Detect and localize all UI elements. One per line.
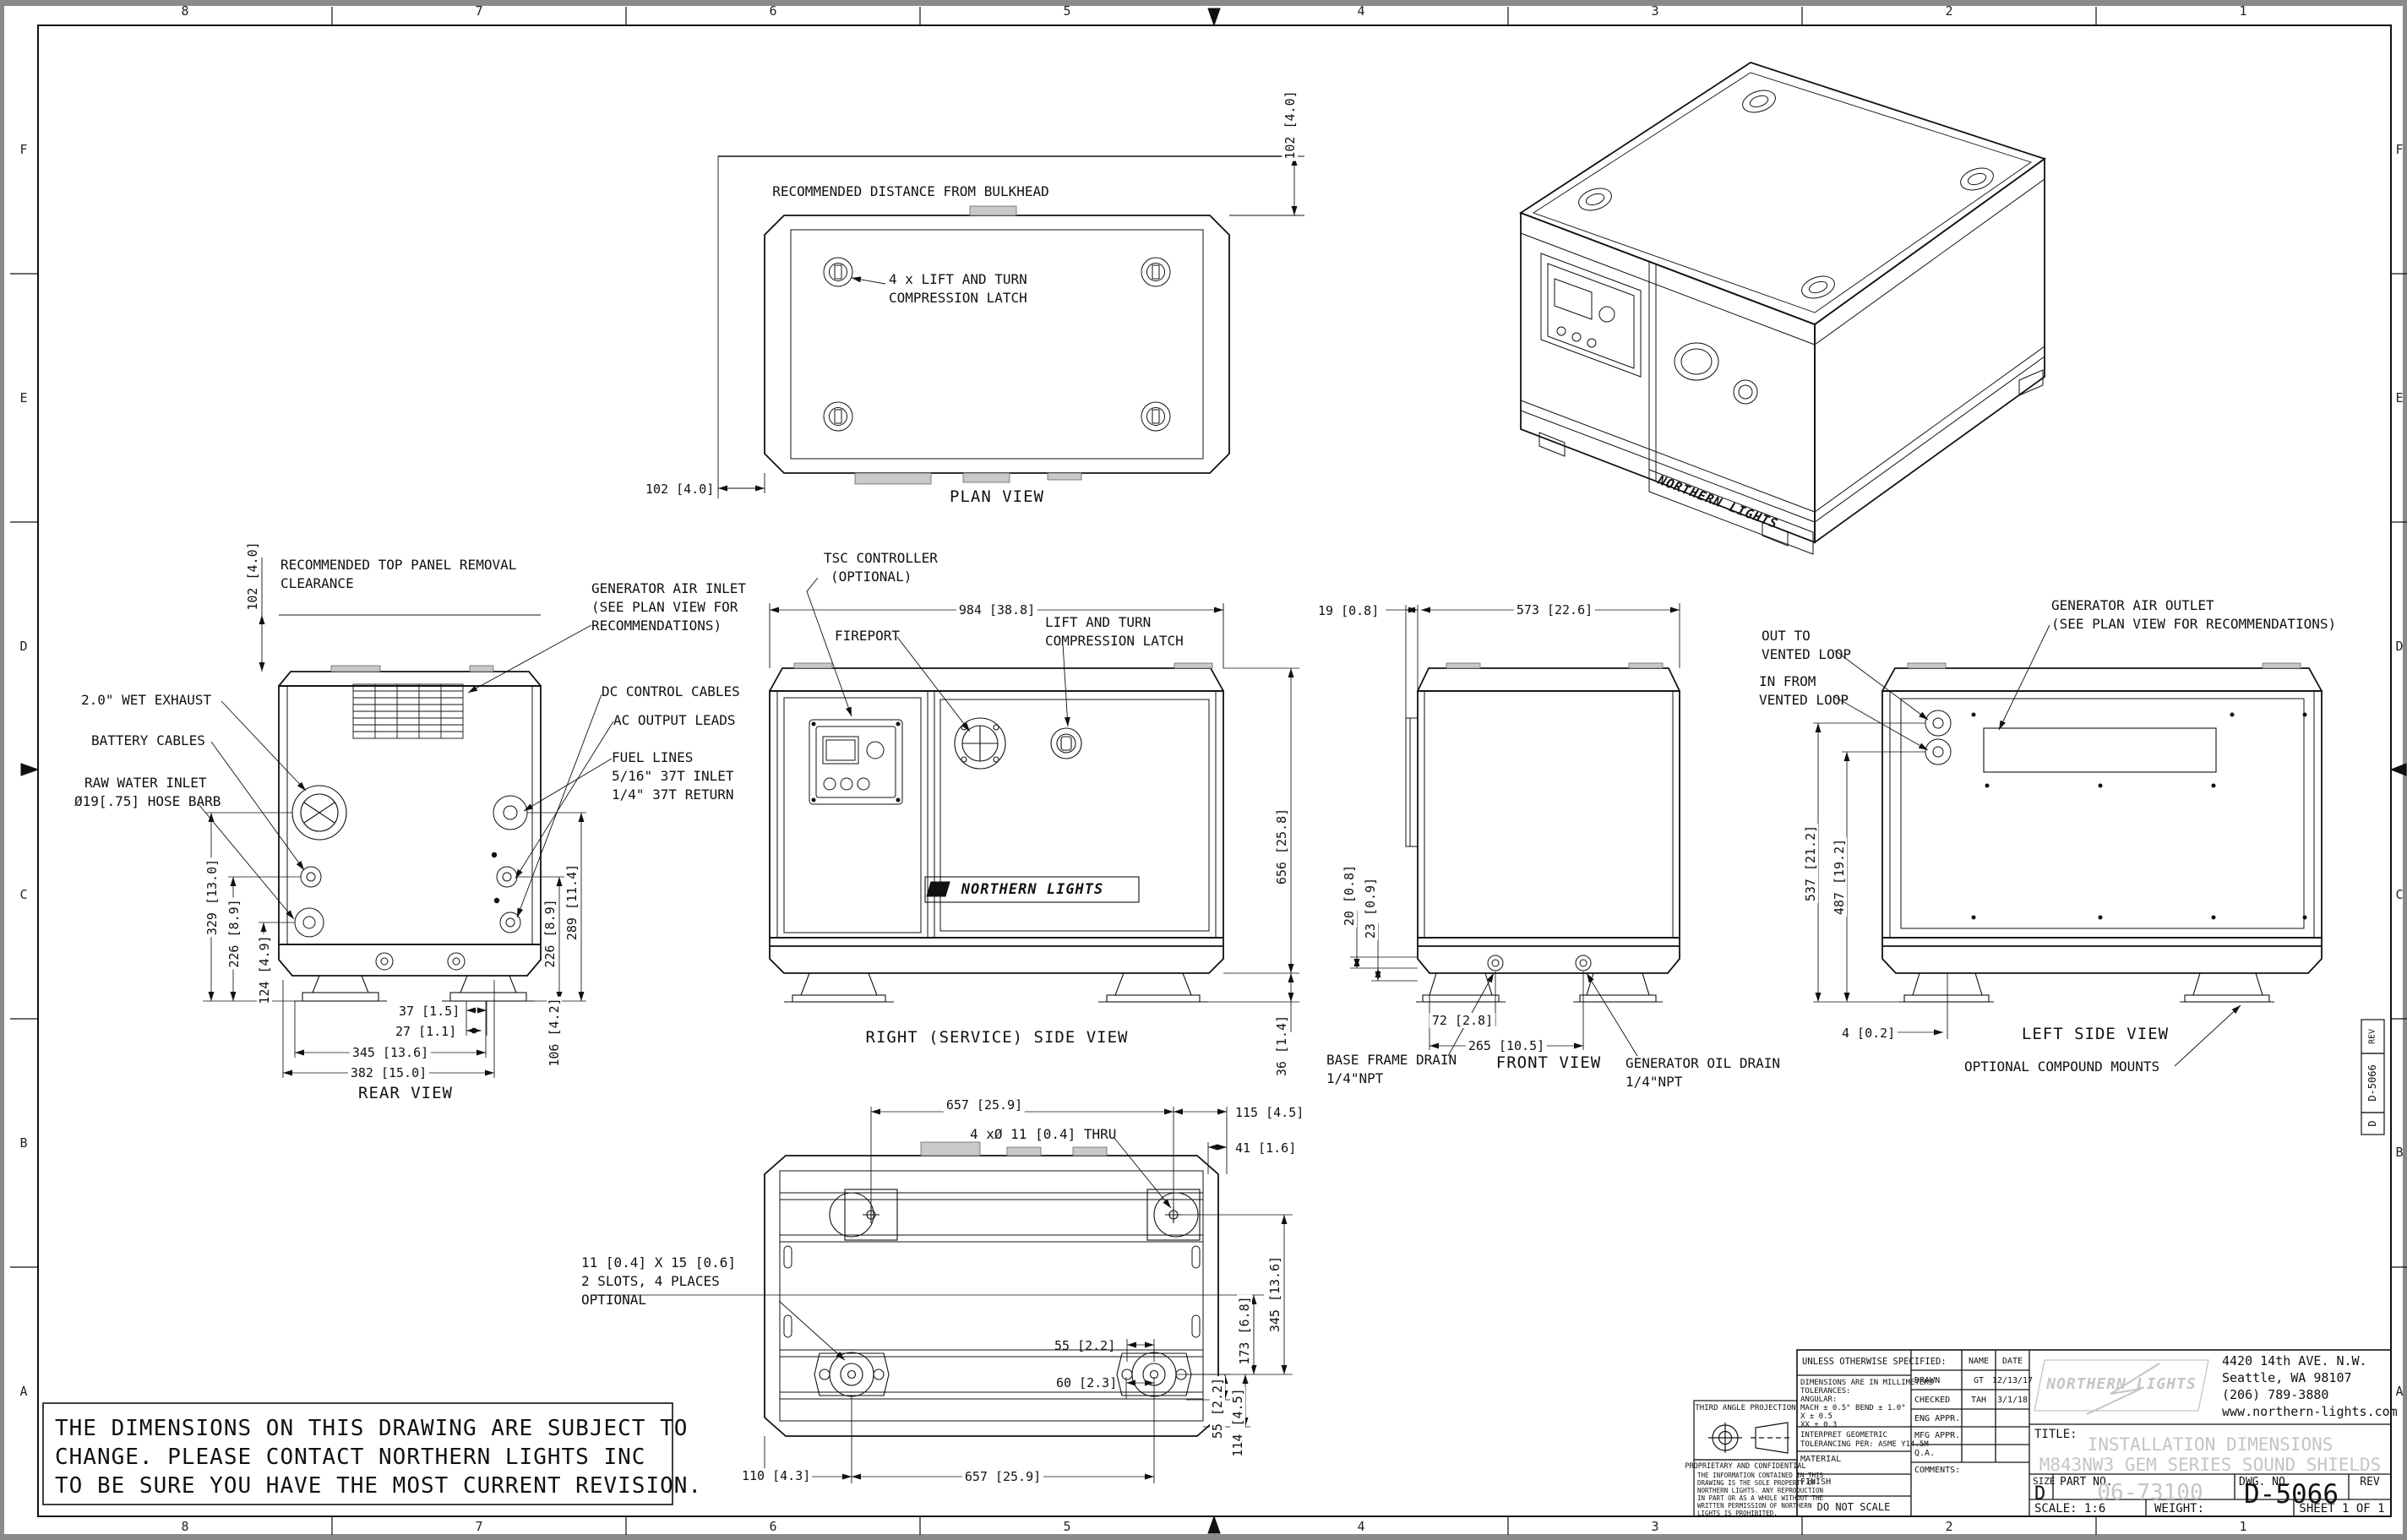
zone-bottom-5: 5 <box>1063 1519 1070 1534</box>
tb-scale: SCALE: 1:6 <box>2034 1502 2105 1516</box>
zone-right-a: A <box>2395 1384 2403 1399</box>
bottom-dim-55b: 55 [2.2] <box>1210 1376 1225 1440</box>
zone-right-b: B <box>2395 1145 2403 1160</box>
base-drain-label-line2: 1/4"NPT <box>1326 1071 1383 1086</box>
tb-material: MATERIAL <box>1800 1455 1841 1464</box>
zone-top-3: 3 <box>1651 3 1658 19</box>
tb-qa: Q.A. <box>1914 1449 1935 1458</box>
isometric-view-geometry <box>1521 63 2045 554</box>
revision-note-line1: THE DIMENSIONS ON THIS DRAWING ARE SUBJE… <box>55 1416 688 1441</box>
zone-left-f: F <box>19 142 27 157</box>
feet <box>784 973 1208 1002</box>
rs-dim-656: 656 [25.8] <box>1274 807 1289 886</box>
fireport-label: FIREPORT <box>835 629 900 644</box>
tb-interpret2: TOLERANCING PER: ASME Y14.5M <box>1800 1440 1929 1449</box>
control-panel-icon <box>1541 253 1641 377</box>
zone-bottom-1: 1 <box>2239 1519 2246 1534</box>
rear-dim-382: 382 [15.0] <box>348 1065 429 1080</box>
battery-cables-label: BATTERY CABLES <box>91 733 205 748</box>
vented-loop-in-fitting <box>1925 739 1951 765</box>
rear-clearance-label-line2: CLEARANCE <box>280 576 354 591</box>
fireport-flange <box>955 718 1005 769</box>
tb-address1: 4420 14th AVE. N.W. <box>2222 1353 2367 1369</box>
third-angle-label: THIRD ANGLE PROJECTION <box>1695 1404 1795 1412</box>
tb-unless: UNLESS OTHERWISE SPECIFIED: <box>1802 1357 1947 1367</box>
slots-label-line3: OPTIONAL <box>581 1292 646 1308</box>
center-arrow-top <box>1208 8 1220 25</box>
zone-bottom-2: 2 <box>1945 1519 1952 1534</box>
ls-dim-487: 487 [19.2] <box>1832 837 1847 917</box>
right-side-view-title: RIGHT (SERVICE) SIDE VIEW <box>866 1029 1129 1047</box>
rear-dim-329: 329 [13.0] <box>204 857 220 937</box>
mount-tabs <box>855 206 1081 484</box>
tb-checked-date: 3/1/18 <box>1997 1396 2028 1405</box>
zone-bottom-7: 7 <box>475 1519 482 1534</box>
thru-holes-label: 4 xØ 11 [0.4] THRU <box>970 1127 1116 1142</box>
tb-drawn: DRAWN <box>1914 1376 1940 1385</box>
front-dim-20: 20 [0.8] <box>1342 863 1357 928</box>
left-side-view-title: LEFT SIDE VIEW <box>2022 1026 2169 1043</box>
top-mount-plates <box>830 1189 1200 1240</box>
rear-dim-clearance: 102 [4.0] <box>245 540 260 612</box>
revision-note-line2: CHANGE. PLEASE CONTACT NORTHERN LIGHTS I… <box>55 1445 645 1470</box>
air-inlet-label-line1: GENERATOR AIR INLET <box>591 581 746 596</box>
base-frame-drain-fitting <box>1488 955 1503 971</box>
rear-dim-37: 37 [1.5] <box>399 1004 460 1019</box>
bottom-dim-110: 110 [4.3] <box>740 1468 812 1483</box>
zone-top-2: 2 <box>1945 3 1952 19</box>
tb-address3: (206) 789-3880 <box>2222 1387 2328 1402</box>
base-drain-holes <box>376 953 465 970</box>
plan-latch-label-line2: COMPRESSION LATCH <box>889 291 1027 306</box>
panel-edge <box>1406 718 1418 846</box>
revision-note-line3: TO BE SURE YOU HAVE THE MOST CURRENT REV… <box>55 1473 702 1499</box>
mount-tabs <box>331 666 493 672</box>
bottom-dim-345: 345 [13.6] <box>1267 1254 1282 1334</box>
tb-title-line2: M843NW3 GEM SERIES SOUND SHIELDS <box>2039 1455 2382 1475</box>
air-outlet-label-line2: (SEE PLAN VIEW FOR RECOMMENDATIONS) <box>2051 617 2336 632</box>
slots-label-line1: 11 [0.4] X 15 [0.6] <box>581 1255 736 1271</box>
rs-dim-984: 984 [38.8] <box>956 602 1037 618</box>
proprietary-line: DRAWING IS THE SOLE PROPERTY OF <box>1697 1479 1816 1487</box>
edge-dwg-no: D-5066 <box>2366 1063 2378 1102</box>
zone-right-c: C <box>2395 887 2403 902</box>
edge-size: D <box>2366 1118 2378 1128</box>
bottom-dim-114: 114 [4.5] <box>1230 1386 1245 1458</box>
ls-dim-537: 537 [21.2] <box>1803 824 1818 903</box>
tb-mfg-appr: MFG APPR. <box>1914 1431 1960 1440</box>
leader-lines <box>807 578 1068 732</box>
rear-dim-124: 124 [4.9] <box>257 933 272 1005</box>
bottom-dim-173: 173 [6.8] <box>1237 1294 1252 1366</box>
center-arrow-bottom <box>1208 1516 1220 1533</box>
zone-left-b: B <box>19 1135 27 1151</box>
bottom-dim-60: 60 [2.3] <box>1056 1375 1117 1390</box>
rear-view-title: REAR VIEW <box>358 1085 453 1102</box>
fireport-icon <box>1675 343 1757 404</box>
latch-icon <box>1576 86 1996 302</box>
bulkhead-distance-label: RECOMMENDED DISTANCE FROM BULKHEAD <box>772 184 1049 199</box>
iso-feet <box>1539 370 2043 546</box>
mount-tabs <box>921 1142 1107 1156</box>
screw-dots <box>1972 713 2307 920</box>
tb-tolerances: TOLERANCES: <box>1800 1387 1851 1396</box>
front-view-title: FRONT VIEW <box>1496 1054 1601 1072</box>
plan-dim-102-top: 102 [4.0] <box>1282 89 1298 161</box>
proprietary-line: WRITTEN PERMISSION OF NORTHERN <box>1697 1502 1811 1510</box>
feet <box>1416 973 1663 1002</box>
compound-mounts-label: OPTIONAL COMPOUND MOUNTS <box>1964 1059 2159 1075</box>
tb-address2: Seattle, WA 98107 <box>2222 1370 2352 1385</box>
tb-checked-name: TAH <box>1971 1396 1986 1405</box>
bottom-dim-657-bottom: 657 [25.9] <box>962 1469 1043 1484</box>
raw-water-label-line1: RAW WATER INLET <box>84 775 207 791</box>
zone-right-e: E <box>2395 390 2403 405</box>
zone-top-7: 7 <box>475 3 482 19</box>
tb-angular: ANGULAR: <box>1800 1396 1837 1404</box>
latch-icon <box>1051 728 1081 759</box>
ac-output-fitting <box>497 867 517 887</box>
drawing-linework <box>0 0 2407 1540</box>
tb-rev-label: REV <box>2360 1476 2379 1488</box>
tsc-controller-panel <box>809 720 902 804</box>
front-view-geometry <box>1350 603 1680 1056</box>
tb-address4: www.northern-lights.com <box>2222 1404 2398 1419</box>
ls-dim-4: 4 [0.2] <box>1842 1026 1895 1041</box>
zone-bottom-4: 4 <box>1357 1519 1364 1534</box>
fuel-line-fitting <box>493 796 527 830</box>
zone-bottom-6: 6 <box>769 1519 776 1534</box>
rs-dim-36: 36 [1.4] <box>1274 1014 1289 1078</box>
front-dim-23: 23 [0.9] <box>1363 876 1378 940</box>
zone-right-d: D <box>2395 639 2403 654</box>
fuel-lines-label-line3: 1/4" 37T RETURN <box>612 787 734 803</box>
tb-interpret1: INTERPRET GEOMETRIC <box>1800 1431 1887 1439</box>
tb-sheet: SHEET 1 OF 1 <box>2299 1502 2384 1516</box>
drawing-sheet: 8 7 6 5 4 3 2 1 8 7 6 5 4 3 2 1 F E D C … <box>0 0 2407 1540</box>
dc-control-label: DC CONTROL CABLES <box>602 684 740 699</box>
fuel-lines-label-line2: 5/16" 37T INLET <box>612 769 734 784</box>
out-vented-loop-line2: VENTED LOOP <box>1762 647 1851 662</box>
tb-checked: CHECKED <box>1914 1396 1950 1405</box>
bottom-view-geometry <box>591 1107 1293 1483</box>
out-vented-loop-line1: OUT TO <box>1762 629 1811 644</box>
air-inlet-louvers <box>353 684 463 738</box>
rear-dim-106: 106 [4.2] <box>547 996 562 1068</box>
center-arrow-left <box>21 764 38 775</box>
fuel-lines-label-line1: FUEL LINES <box>612 750 693 765</box>
tb-mach: MACH ± 0.5° BEND ± 1.0° <box>1800 1404 1906 1412</box>
zone-right-f: F <box>2395 142 2403 157</box>
tb-title-line1: INSTALLATION DIMENSIONS <box>2088 1434 2333 1455</box>
zone-left-a: A <box>19 1384 27 1399</box>
plan-latch-label-line1: 4 x LIFT AND TURN <box>889 272 1027 287</box>
center-arrow-right <box>2391 764 2406 775</box>
tb-drawn-date: 12/13/17 <box>1992 1376 2033 1385</box>
air-inlet-label-line2: (SEE PLAN VIEW FOR <box>591 600 738 615</box>
wet-exhaust-label: 2.0" WET EXHAUST <box>81 693 211 708</box>
ac-output-label: AC OUTPUT LEADS <box>613 713 736 728</box>
zone-left-d: D <box>19 639 27 654</box>
raw-water-label-line2: Ø19[.75] HOSE BARB <box>74 794 221 809</box>
plan-dim-102-left: 102 [4.0] <box>645 482 714 497</box>
oil-drain-label-line1: GENERATOR OIL DRAIN <box>1626 1056 1780 1071</box>
bottom-dim-115: 115 [4.5] <box>1235 1105 1304 1120</box>
zone-bottom-3: 3 <box>1651 1519 1658 1534</box>
edge-rev-label: REV <box>2368 1027 2377 1046</box>
rear-dim-226-left: 226 [8.9] <box>226 897 242 969</box>
zone-top-5: 5 <box>1063 3 1070 19</box>
in-vented-loop-line1: IN FROM <box>1759 674 1816 689</box>
raw-water-inlet-fitting <box>295 908 324 937</box>
exhaust-port-icon <box>292 786 346 840</box>
zone-top-6: 6 <box>769 3 776 19</box>
bottom-dim-657-top: 657 [25.9] <box>944 1097 1025 1113</box>
oil-drain-label-line2: 1/4"NPT <box>1626 1075 1682 1090</box>
right-side-view-geometry <box>770 578 1299 1032</box>
rs-latch-label-line2: COMPRESSION LATCH <box>1045 634 1184 649</box>
tb-weight: WEIGHT: <box>2154 1502 2204 1516</box>
tb-do-not-scale: DO NOT SCALE <box>1817 1501 1891 1513</box>
tb-drawn-name: GT <box>1974 1376 1984 1385</box>
tb-finish: FINISH <box>1800 1477 1831 1487</box>
air-inlet-label-line3: RECOMMENDATIONS) <box>591 618 722 634</box>
proprietary-line: LIGHTS IS PROHIBITED. <box>1697 1510 1778 1517</box>
bottom-dim-41: 41 [1.6] <box>1235 1140 1296 1156</box>
zone-top-8: 8 <box>181 3 188 19</box>
rear-dim-289: 289 [11.4] <box>564 863 580 942</box>
feet <box>294 976 535 1001</box>
rs-logo-text: NORTHERN LIGHTS <box>961 882 1104 898</box>
in-vented-loop-line2: VENTED LOOP <box>1759 693 1849 708</box>
air-outlet-slot <box>1984 728 2216 772</box>
bottom-mount-flanges <box>814 1352 1191 1396</box>
zone-left-e: E <box>19 390 27 405</box>
base-drain-label-line1: BASE FRAME DRAIN <box>1326 1053 1457 1068</box>
front-dim-265: 265 [10.5] <box>1466 1038 1547 1053</box>
rs-latch-label-line1: LIFT AND TURN <box>1045 615 1151 630</box>
front-dim-72: 72 [2.8] <box>1429 1013 1495 1028</box>
tb-eng-appr: ENG APPR. <box>1914 1414 1960 1423</box>
feet <box>1899 973 2274 1002</box>
vented-loop-out-fitting <box>1925 710 1951 736</box>
tb-x-tol: X ± 0.5 <box>1800 1412 1832 1421</box>
proprietary-line: NORTHERN LIGHTS. ANY REPRODUCTION <box>1697 1487 1823 1494</box>
oil-drain-fitting <box>1576 955 1591 971</box>
rear-clearance-label-line1: RECOMMENDED TOP PANEL REMOVAL <box>280 558 516 573</box>
tb-name-header: NAME <box>1969 1357 1989 1366</box>
optional-slots <box>784 1246 1200 1337</box>
leader-lines <box>199 625 613 919</box>
tsc-label-line1: TSC CONTROLLER <box>824 551 938 566</box>
tb-company-logo-text: NORTHERN LIGHTS <box>2046 1375 2197 1393</box>
rear-dim-345: 345 [13.6] <box>350 1045 431 1060</box>
dimension-lines <box>1350 603 1680 1050</box>
tsc-label-line2: (OPTIONAL) <box>830 569 912 585</box>
front-dim-573: 573 [22.6] <box>1514 602 1595 618</box>
air-outlet-label-line1: GENERATOR AIR OUTLET <box>2051 598 2214 613</box>
bottom-dim-55a: 55 [2.2] <box>1054 1338 1115 1353</box>
rear-dim-27: 27 [1.1] <box>395 1024 456 1039</box>
tb-xx-tol: XX ± 0.3 <box>1800 1421 1837 1429</box>
tb-comments: COMMENTS: <box>1914 1466 1960 1475</box>
plan-view-title: PLAN VIEW <box>950 488 1044 506</box>
zone-top-1: 1 <box>2239 3 2246 19</box>
left-side-view-geometry <box>1813 625 2322 1066</box>
proprietary-line: IN PART OR AS A WHOLE WITHOUT THE <box>1697 1494 1823 1502</box>
zone-top-4: 4 <box>1357 3 1364 19</box>
tb-dims-mm: DIMENSIONS ARE IN MILLIMETERS <box>1800 1379 1933 1387</box>
rear-dim-226-right: 226 [8.9] <box>542 897 558 969</box>
proprietary-title: PROPRIETARY AND CONFIDENTIAL <box>1685 1462 1805 1471</box>
tb-title-label: TITLE: <box>2034 1428 2078 1441</box>
dc-control-fitting <box>500 912 520 933</box>
slots-label-line2: 2 SLOTS, 4 PLACES <box>581 1274 720 1289</box>
front-dim-19: 19 [0.8] <box>1318 603 1379 618</box>
zone-left-c: C <box>19 887 27 902</box>
tb-date-header: DATE <box>2002 1357 2023 1366</box>
zone-bottom-8: 8 <box>181 1519 188 1534</box>
